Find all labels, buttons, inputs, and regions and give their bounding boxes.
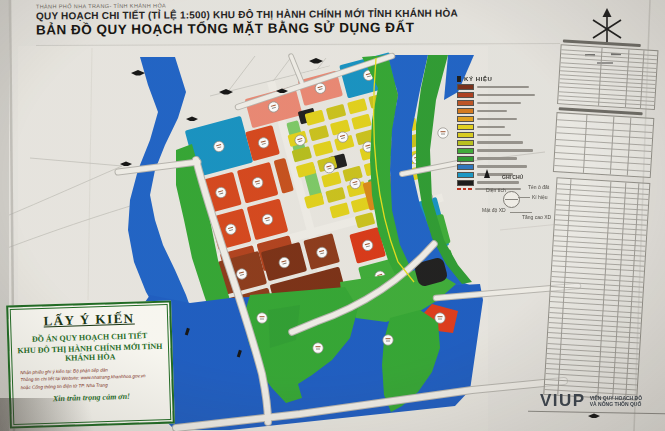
lot-symbol-diagram [503, 191, 520, 208]
legend-item [457, 124, 565, 130]
tree-symbol-icon [484, 169, 490, 178]
notes-title: GHI CHÚ [502, 174, 523, 180]
legend-item [457, 132, 565, 138]
viup-logo: VIUP [540, 391, 586, 411]
lot-name-label: Tên ô đất [528, 184, 549, 190]
connector-line-2 [510, 212, 532, 213]
consultation-title: LẤY Ý KIẾN [8, 309, 169, 330]
legend-title-row: KÝ HIỆU [457, 76, 565, 82]
legend-title: KÝ HIỆU [464, 76, 493, 82]
consultation-line3: KHU ĐÔ THỊ HÀNH CHÍNH MỚI TỈNH KHÁNH HÒA [9, 341, 170, 364]
poster-photo: THÀNH PHỐ NHA TRANG- TỈNH KHÁNH HÒA QUY … [0, 0, 665, 431]
connector-line [518, 197, 530, 198]
floors-label: Tầng cao XD [522, 214, 551, 220]
publisher-org-line2: VÀ NÔNG THÔN QUỐ [590, 401, 642, 408]
legend-icon [457, 76, 461, 82]
notes-block: GHI CHÚ Diện tích Tên ô đất Kí hiệu Mật … [470, 166, 580, 238]
legend-item [457, 108, 565, 114]
consultation-notice: LẤY Ý KIẾN ĐỒ ÁN QUY HOẠCH CHI TIẾT KHU … [6, 300, 175, 428]
title-block: THÀNH PHỐ NHA TRANG- TỈNH KHÁNH HÒA QUY … [36, 1, 458, 38]
legend-item [457, 148, 565, 154]
publisher-org: VIỆN QUY HOẠCH ĐÔ VÀ NÔNG THÔN QUỐ [590, 395, 642, 408]
area-label: Diện tích [486, 187, 506, 193]
legend-item [457, 116, 565, 122]
legend-item [457, 140, 565, 146]
publisher-block: VIUP VIỆN QUY HOẠCH ĐÔ VÀ NÔNG THÔN QUỐ [540, 391, 642, 411]
consultation-notes: Nhận phiếu ghi ý kiến tại: Bộ phận tiếp … [20, 365, 162, 391]
landuse-table-1 [557, 44, 658, 110]
density-label: Mật độ XD [482, 207, 506, 213]
page-title: BẢN ĐỒ QUY HOẠCH TỔNG MẶT BẰNG SỬ DỤNG Đ… [36, 20, 458, 38]
legend-item [457, 92, 565, 98]
consultation-thanks: Xin trân trọng cảm ơn! [11, 390, 172, 404]
legend-item [457, 100, 565, 106]
legend-item [457, 84, 565, 90]
legend-item [457, 156, 565, 162]
symbol-label: Kí hiệu [532, 194, 548, 200]
